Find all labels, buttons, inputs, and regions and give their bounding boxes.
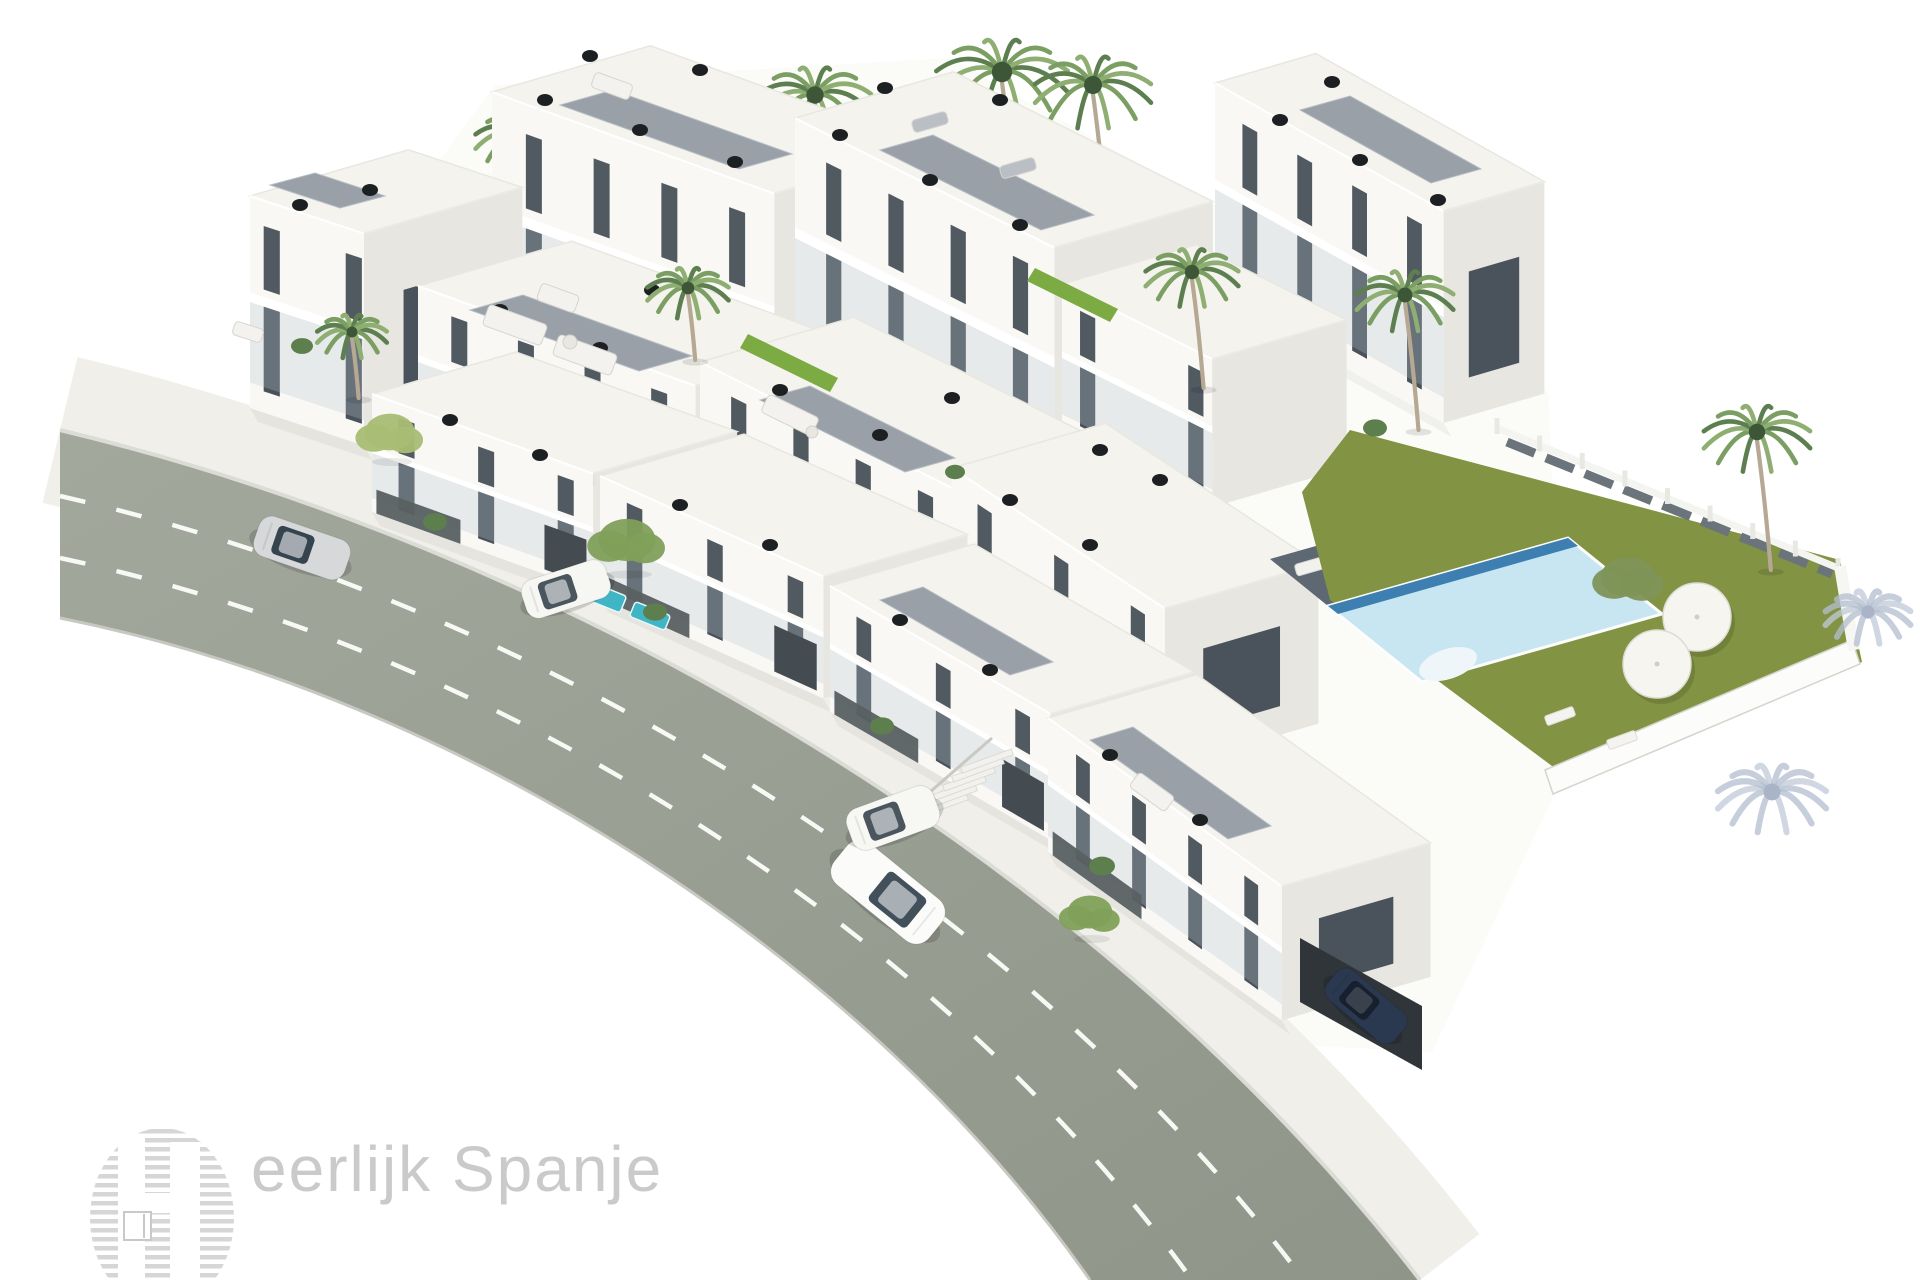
window (264, 226, 280, 295)
window (729, 207, 745, 287)
window (951, 225, 966, 305)
window (1080, 311, 1095, 363)
chimney (632, 124, 648, 136)
fence-post (1750, 523, 1755, 539)
window (888, 193, 903, 273)
chimney (692, 64, 708, 76)
chimney (727, 156, 743, 168)
chimney (832, 129, 848, 141)
render-scene (0, 0, 1920, 1280)
shrub (945, 465, 965, 479)
window (661, 183, 677, 263)
chimney (1324, 76, 1340, 88)
chimney (1012, 219, 1028, 231)
fence-post (1708, 506, 1713, 522)
chimney (922, 174, 938, 186)
fence-post (1793, 541, 1798, 557)
fence-post (1495, 418, 1500, 434)
window (826, 162, 841, 242)
chimney (442, 414, 458, 426)
chimney (1272, 114, 1288, 126)
chimney (772, 384, 788, 396)
terrace-table (806, 426, 818, 438)
chimney (1430, 194, 1446, 206)
shrub (870, 717, 894, 734)
chimney (877, 82, 893, 94)
window (1242, 124, 1257, 196)
shrub (1363, 419, 1387, 436)
window (1352, 185, 1367, 257)
chimney (944, 392, 960, 404)
chimney (992, 94, 1008, 106)
chimney (982, 664, 998, 676)
chimney (292, 199, 308, 211)
chimney (1152, 474, 1168, 486)
window (478, 446, 494, 487)
chimney (1092, 444, 1108, 456)
chimney (762, 539, 778, 551)
palm-shadow (1718, 766, 1826, 833)
shrub (1089, 857, 1115, 876)
end-window (1469, 257, 1519, 378)
window (788, 575, 804, 619)
chimney (1102, 749, 1118, 761)
shrub (291, 338, 313, 354)
chimney (1002, 494, 1018, 506)
window (1013, 256, 1028, 336)
architectural-render: eerlijk Spanje (0, 0, 1920, 1280)
window (346, 253, 362, 322)
chimney (582, 50, 598, 62)
fence-post (1665, 488, 1670, 504)
window (526, 134, 542, 214)
fence-post (1622, 471, 1627, 487)
fence-post (1580, 453, 1585, 469)
palm-shadow (1825, 591, 1910, 643)
shrub (423, 513, 447, 530)
chimney (672, 499, 688, 511)
chimney (892, 614, 908, 626)
garden-tree (1620, 569, 1664, 601)
chimney (362, 184, 378, 196)
window (558, 475, 574, 516)
chimney (1082, 539, 1098, 551)
shrub (643, 603, 667, 620)
chimney (1352, 154, 1368, 166)
fence-post (1537, 436, 1542, 452)
window (707, 539, 723, 583)
chimney (537, 94, 553, 106)
chimney (872, 429, 888, 441)
chimney (1192, 814, 1208, 826)
window (594, 158, 610, 238)
chimney (532, 449, 548, 461)
window (451, 316, 467, 367)
terrace-table (563, 335, 577, 349)
window (1297, 155, 1312, 227)
